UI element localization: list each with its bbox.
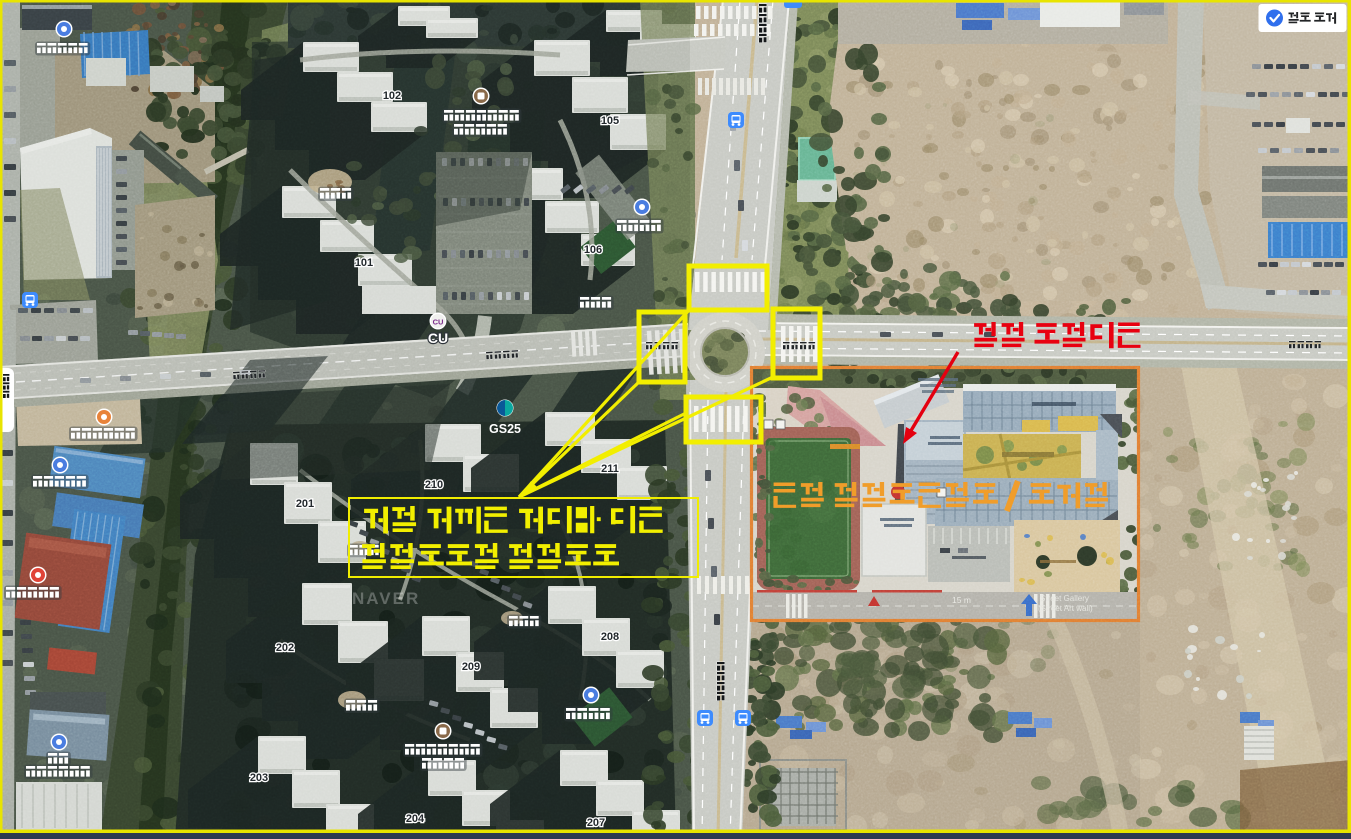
- svg-text:CU: CU: [428, 330, 448, 346]
- svg-text:GS25: GS25: [489, 422, 521, 436]
- svg-text:105: 105: [601, 115, 619, 127]
- svg-text:208: 208: [601, 631, 619, 643]
- svg-text:102: 102: [383, 90, 401, 102]
- svg-text:201: 201: [296, 498, 314, 510]
- svg-text:203: 203: [250, 772, 268, 784]
- svg-text:211: 211: [601, 463, 619, 475]
- svg-text:204: 204: [406, 813, 425, 825]
- svg-text:202: 202: [276, 642, 294, 654]
- svg-text:210: 210: [425, 479, 443, 491]
- svg-text:101: 101: [355, 257, 373, 269]
- svg-text:106: 106: [584, 244, 602, 256]
- svg-text:207: 207: [587, 817, 605, 829]
- svg-text:NAVER: NAVER: [352, 589, 420, 608]
- svg-text:209: 209: [462, 661, 480, 673]
- svg-text:CU: CU: [433, 318, 444, 327]
